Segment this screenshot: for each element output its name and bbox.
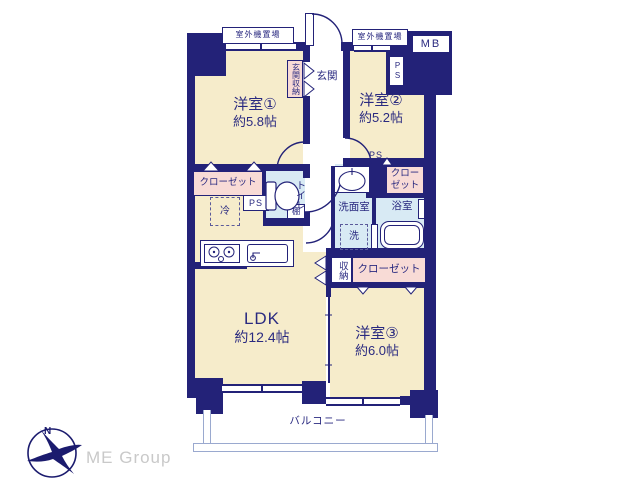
storage-fold-mark: [315, 271, 326, 285]
closet1-fold-mark: [203, 162, 219, 171]
bedroom2-name: 洋室②: [338, 92, 424, 110]
entrance-storage-fold-mark: [304, 81, 314, 97]
bedroom1-size: 約5.8帖: [210, 114, 300, 130]
stove-burner-small: [219, 257, 224, 262]
bedroom1-door-arc: [277, 142, 305, 170]
entrance-label: 玄関: [312, 70, 342, 83]
floor-plan: 室外機置場 室外機置場 MB PS クローゼット 玄関収納 クロー ゼット クロ…: [0, 0, 640, 480]
ps-right-label: PS: [366, 150, 386, 161]
logo-company-name: ME Group: [86, 448, 171, 468]
bedroom2-size: 約5.2帖: [338, 110, 424, 126]
storage-fold-mark: [315, 256, 326, 270]
closet3-fold-mark: [405, 287, 417, 294]
closet3-fold-mark: [357, 287, 369, 294]
bedroom1-name: 洋室①: [210, 96, 300, 114]
toilet-label: トイレ: [292, 172, 306, 218]
logo-north-label: N: [44, 426, 51, 437]
bedroom3-size: 約6.0帖: [332, 343, 422, 359]
entrance-door-arc: [312, 14, 342, 44]
bathroom-label: 浴室: [386, 200, 418, 213]
ldk-name: LDK: [210, 309, 314, 329]
balcony-label: バルコニー: [280, 415, 356, 428]
hallway-ldk-door-arc: [306, 215, 334, 243]
bedroom3-name: 洋室③: [332, 325, 422, 343]
washroom-label: 洗面室: [333, 201, 375, 214]
stove-burner-dot: [228, 251, 230, 253]
ldk-size: 約12.4帖: [204, 329, 320, 346]
stove-burner-dot: [213, 251, 215, 253]
closet1-fold-mark: [246, 162, 262, 171]
